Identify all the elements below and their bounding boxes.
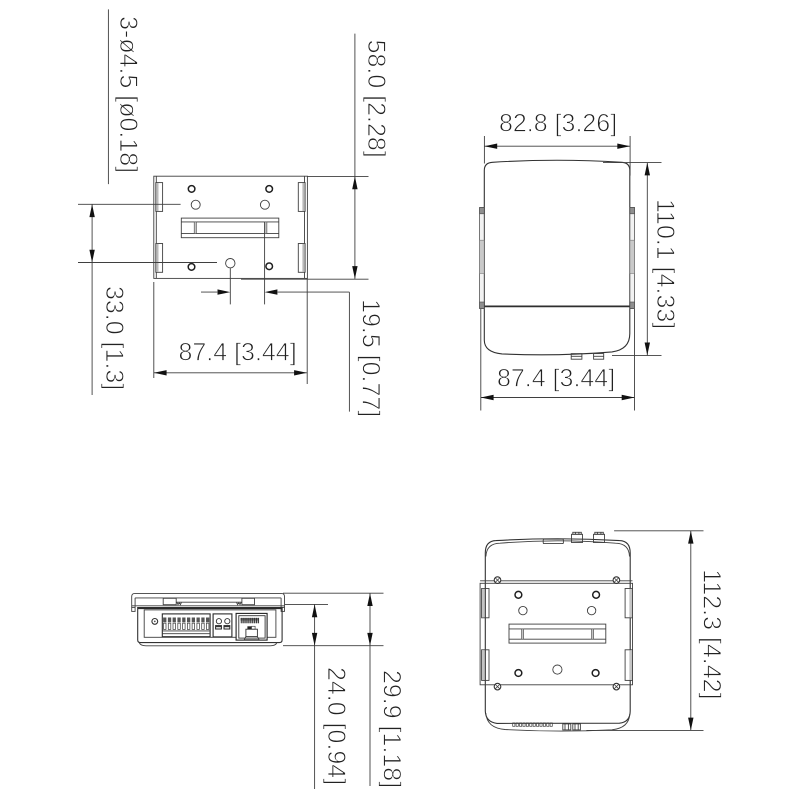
svg-text:24.0 [0.94]: 24.0 [0.94]: [322, 667, 350, 785]
svg-text:112.3 [4.42]: 112.3 [4.42]: [697, 569, 725, 699]
svg-text:19.5 [0.77]: 19.5 [0.77]: [357, 299, 385, 417]
svg-text:33.0 [1.3]: 33.0 [1.3]: [100, 286, 128, 390]
svg-text:82.8 [3.26]: 82.8 [3.26]: [499, 109, 617, 137]
svg-text:87.4 [3.44]: 87.4 [3.44]: [179, 339, 297, 367]
svg-text:58.0 [2.28]: 58.0 [2.28]: [362, 40, 390, 158]
svg-text:110.1 [4.33]: 110.1 [4.33]: [651, 199, 679, 329]
svg-text:87.4 [3.44]: 87.4 [3.44]: [497, 364, 615, 392]
svg-text:29.9 [1.18]: 29.9 [1.18]: [377, 670, 405, 788]
svg-text:3-ø4.5 [ø0.18]: 3-ø4.5 [ø0.18]: [114, 16, 142, 173]
